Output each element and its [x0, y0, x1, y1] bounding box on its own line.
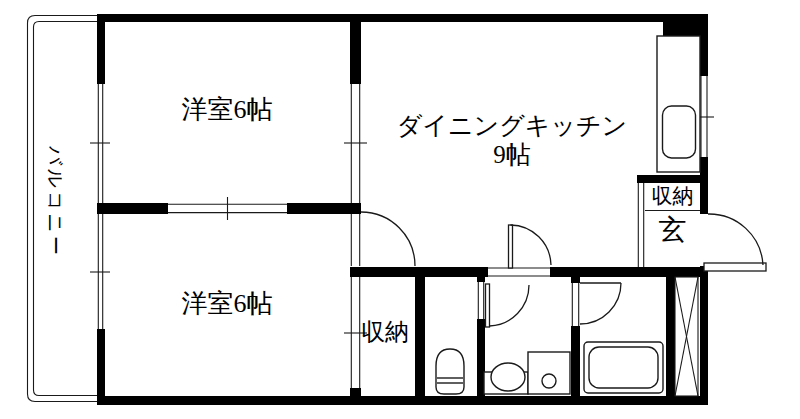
floorplan: 洋室6帖 ダイニングキッチン 9帖 洋室6帖 収納 収納 玄 バルコニー	[0, 0, 800, 419]
wall-between-rooms-right	[287, 203, 361, 214]
toilet-icon	[436, 349, 464, 394]
door-washroom-out	[509, 225, 552, 268]
wall-bath-right	[666, 267, 675, 396]
kitchen-counter-icon	[657, 36, 700, 172]
toilet-door-opening	[478, 282, 483, 319]
washbasin-icon	[484, 363, 528, 394]
pipe-shaft-icon	[675, 277, 698, 396]
room-label-dining-kitchen-size: 9帖	[362, 141, 662, 169]
kitchen-sink-icon	[663, 106, 696, 158]
slider-between-rooms	[168, 197, 287, 220]
floorplan-drawing	[0, 0, 800, 419]
door-bath	[580, 283, 621, 324]
bath-door-opening	[572, 283, 578, 326]
room-label-western-top: 洋室6帖	[104, 96, 350, 125]
washroom-threshold	[488, 268, 550, 276]
wall-entry-top	[637, 175, 708, 183]
door-washroom-in	[486, 284, 530, 327]
wall-between-rooms-left	[97, 203, 168, 214]
door-arc-bedroom2	[361, 212, 415, 266]
room-label-western-bottom: 洋室6帖	[104, 290, 350, 319]
room-label-hall-closet: 収納	[352, 319, 418, 345]
room-label-entry-closet: 収納	[645, 185, 700, 208]
wall-room-dk-divider	[350, 22, 361, 84]
room-label-entry: 玄	[645, 215, 700, 246]
bathtub-icon	[584, 342, 663, 393]
washing-machine-pan-icon	[528, 352, 570, 394]
room-label-dining-kitchen: ダイニングキッチン	[362, 112, 662, 140]
door-entrance	[704, 214, 766, 271]
entry-step-edge	[638, 183, 643, 267]
hall-door-opening	[351, 214, 359, 266]
room-label-balcony: バルコニー	[44, 146, 65, 286]
